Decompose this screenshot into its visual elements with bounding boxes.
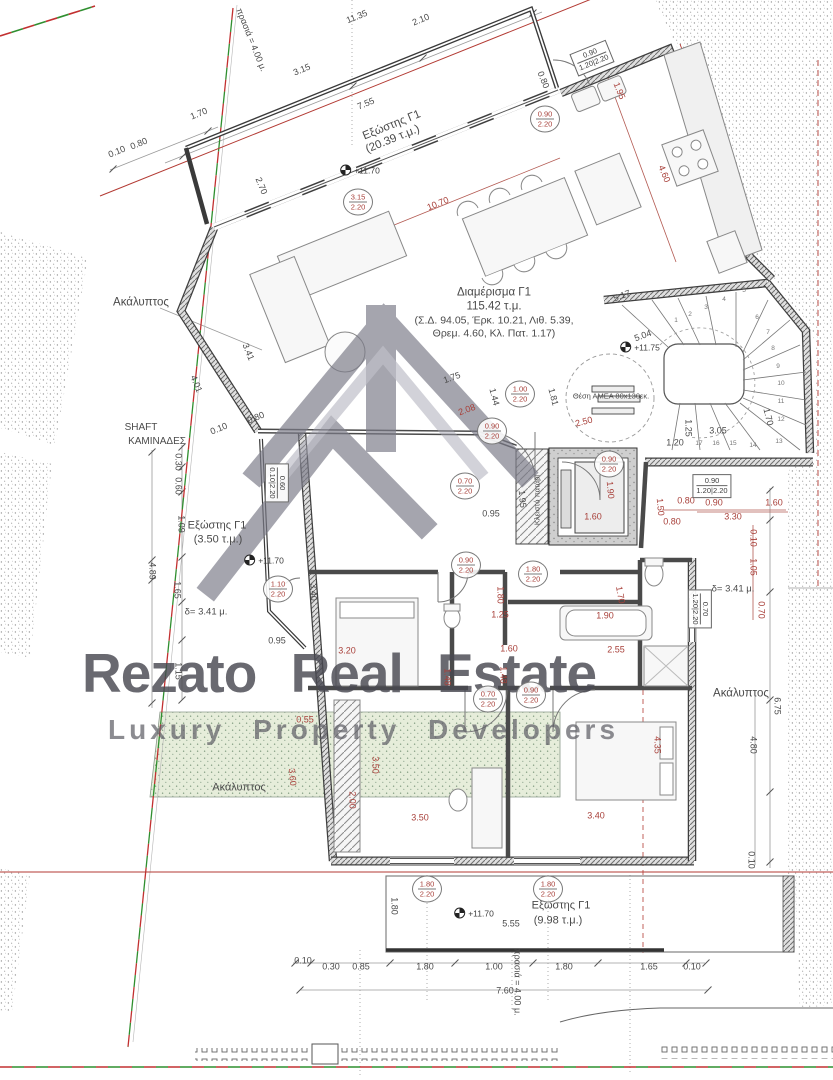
stair-step-number: 6 <box>755 315 759 322</box>
stair-step-number: 12 <box>777 417 784 424</box>
stair-step-number: 4 <box>722 297 726 304</box>
stair-step-number: 17 <box>695 441 702 448</box>
floor-plan: Rezato Real Estate Luxury Property Devel… <box>0 0 833 1080</box>
stair-number-layer: 1234567891011121314151617 <box>0 0 833 1080</box>
stair-step-number: 13 <box>775 439 782 446</box>
stair-step-number: 8 <box>771 346 775 353</box>
stair-step-number: 3 <box>704 305 708 312</box>
stair-step-number: 5 <box>742 288 746 295</box>
stair-step-number: 1 <box>674 318 678 325</box>
stair-step-number: 10 <box>777 381 784 388</box>
stair-step-number: 11 <box>778 399 785 406</box>
stair-step-number: 15 <box>729 441 736 448</box>
stair-step-number: 14 <box>749 443 756 450</box>
stair-step-number: 2 <box>688 312 692 319</box>
stair-step-number: 16 <box>712 441 719 448</box>
stair-step-number: 9 <box>776 364 780 371</box>
stair-step-number: 7 <box>766 330 770 337</box>
